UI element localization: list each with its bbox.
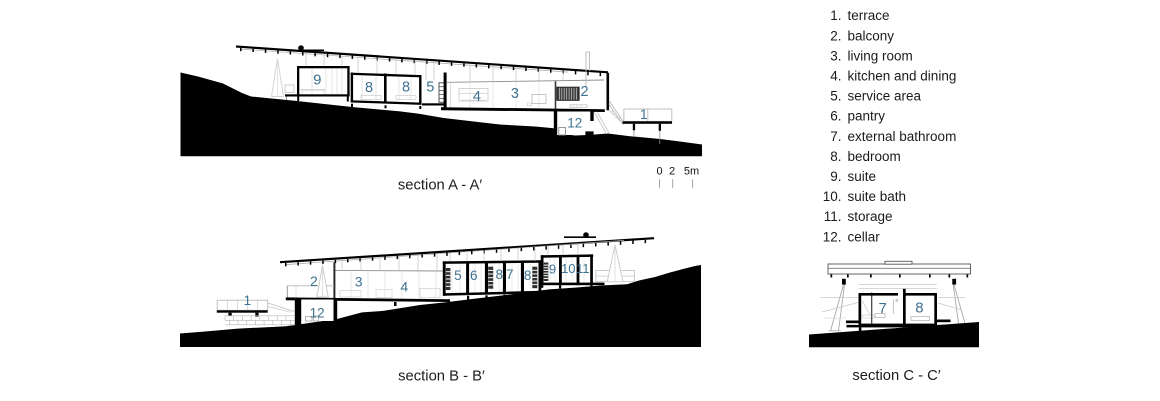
- svg-text:2.: 2.: [830, 28, 841, 43]
- svg-text:section A - A′: section A - A′: [398, 178, 482, 194]
- svg-text:1: 1: [244, 293, 252, 308]
- svg-text:3: 3: [511, 86, 519, 102]
- svg-text:6: 6: [470, 268, 478, 283]
- svg-text:10.: 10.: [823, 189, 842, 204]
- svg-text:5m: 5m: [684, 165, 699, 177]
- svg-text:4.: 4.: [830, 69, 841, 84]
- svg-text:suite: suite: [848, 169, 877, 184]
- svg-text:bedroom: bedroom: [848, 149, 901, 164]
- svg-text:5: 5: [426, 80, 434, 96]
- svg-text:kitchen and dining: kitchen and dining: [848, 69, 957, 84]
- svg-text:8: 8: [915, 299, 923, 316]
- svg-text:1: 1: [640, 107, 648, 122]
- svg-text:balcony: balcony: [848, 28, 895, 43]
- svg-text:9: 9: [549, 262, 556, 277]
- svg-text:section C - C′: section C - C′: [852, 368, 941, 384]
- svg-text:storage: storage: [848, 209, 893, 224]
- svg-text:2: 2: [669, 165, 675, 177]
- svg-text:4: 4: [473, 89, 481, 105]
- svg-text:9.: 9.: [830, 169, 841, 184]
- svg-text:7: 7: [506, 267, 514, 282]
- svg-text:suite bath: suite bath: [848, 189, 907, 204]
- svg-text:8: 8: [496, 267, 504, 282]
- svg-text:pantry: pantry: [848, 109, 886, 124]
- svg-text:2: 2: [580, 84, 588, 100]
- svg-text:3.: 3.: [830, 48, 841, 63]
- svg-text:6.: 6.: [830, 109, 841, 124]
- svg-text:living room: living room: [848, 48, 913, 63]
- svg-text:4: 4: [400, 278, 408, 294]
- svg-text:9: 9: [313, 71, 321, 88]
- svg-text:1.: 1.: [830, 8, 841, 23]
- svg-text:7.: 7.: [830, 129, 841, 144]
- svg-text:external bathroom: external bathroom: [848, 129, 957, 144]
- svg-text:11: 11: [576, 261, 590, 276]
- svg-text:3: 3: [355, 273, 363, 289]
- svg-text:12: 12: [567, 116, 582, 131]
- svg-text:cellar: cellar: [848, 229, 881, 244]
- svg-text:8: 8: [402, 79, 410, 95]
- svg-text:8: 8: [524, 268, 532, 283]
- svg-text:7: 7: [879, 300, 887, 317]
- svg-text:5: 5: [454, 268, 462, 283]
- svg-text:12.: 12.: [823, 229, 842, 244]
- svg-text:service area: service area: [848, 89, 922, 104]
- svg-text:5.: 5.: [830, 89, 841, 104]
- svg-text:11.: 11.: [824, 209, 842, 224]
- svg-text:terrace: terrace: [848, 8, 890, 23]
- svg-text:section B - B′: section B - B′: [398, 369, 485, 385]
- svg-text:8.: 8.: [830, 149, 841, 164]
- svg-text:8: 8: [365, 80, 373, 96]
- svg-text:2: 2: [310, 273, 318, 289]
- svg-text:10: 10: [561, 261, 575, 276]
- svg-text:0: 0: [656, 165, 662, 177]
- svg-text:12: 12: [310, 305, 325, 320]
